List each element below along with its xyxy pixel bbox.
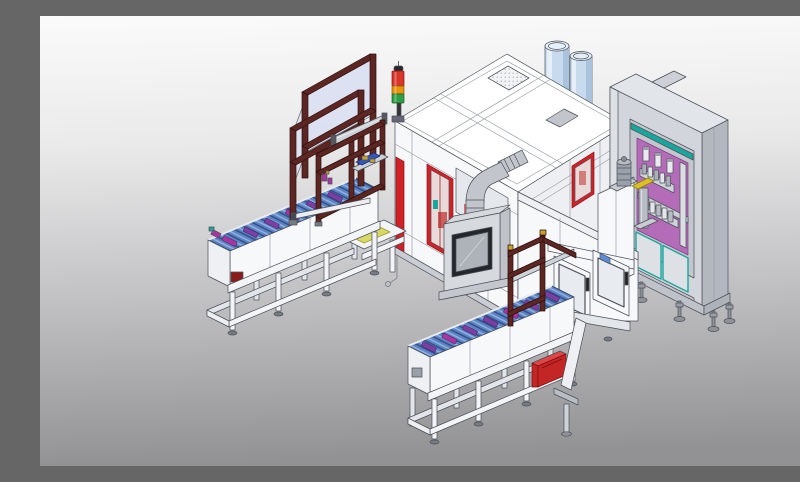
tower-bracket: [392, 116, 404, 122]
signal-red-lamp: [392, 71, 404, 86]
signal-cap: [394, 66, 403, 71]
gold-fitting: [326, 171, 329, 174]
door-handle: [625, 272, 628, 285]
interior-teal-part: [433, 200, 438, 209]
gold-fitting: [540, 230, 546, 235]
end-connector-box: [412, 368, 422, 377]
gold-fitting: [362, 156, 368, 160]
signal-amber-lamp: [392, 86, 404, 94]
gripper-magenta: [328, 178, 332, 184]
cabinet-side: [702, 120, 728, 308]
gold-fitting: [508, 245, 513, 250]
door-handle: [586, 278, 589, 291]
hmi-viewing-box: [439, 205, 510, 300]
gold-fitting: [370, 159, 375, 163]
post-foot: [315, 222, 322, 226]
foot-pad: [604, 337, 612, 341]
cad-render-viewport: [40, 16, 800, 466]
wire-duct-strip: [680, 162, 686, 248]
post-foot: [289, 220, 297, 225]
signal-green-lamp: [392, 94, 404, 103]
scene-canvas: [40, 16, 800, 466]
gripper-magenta: [322, 174, 327, 181]
